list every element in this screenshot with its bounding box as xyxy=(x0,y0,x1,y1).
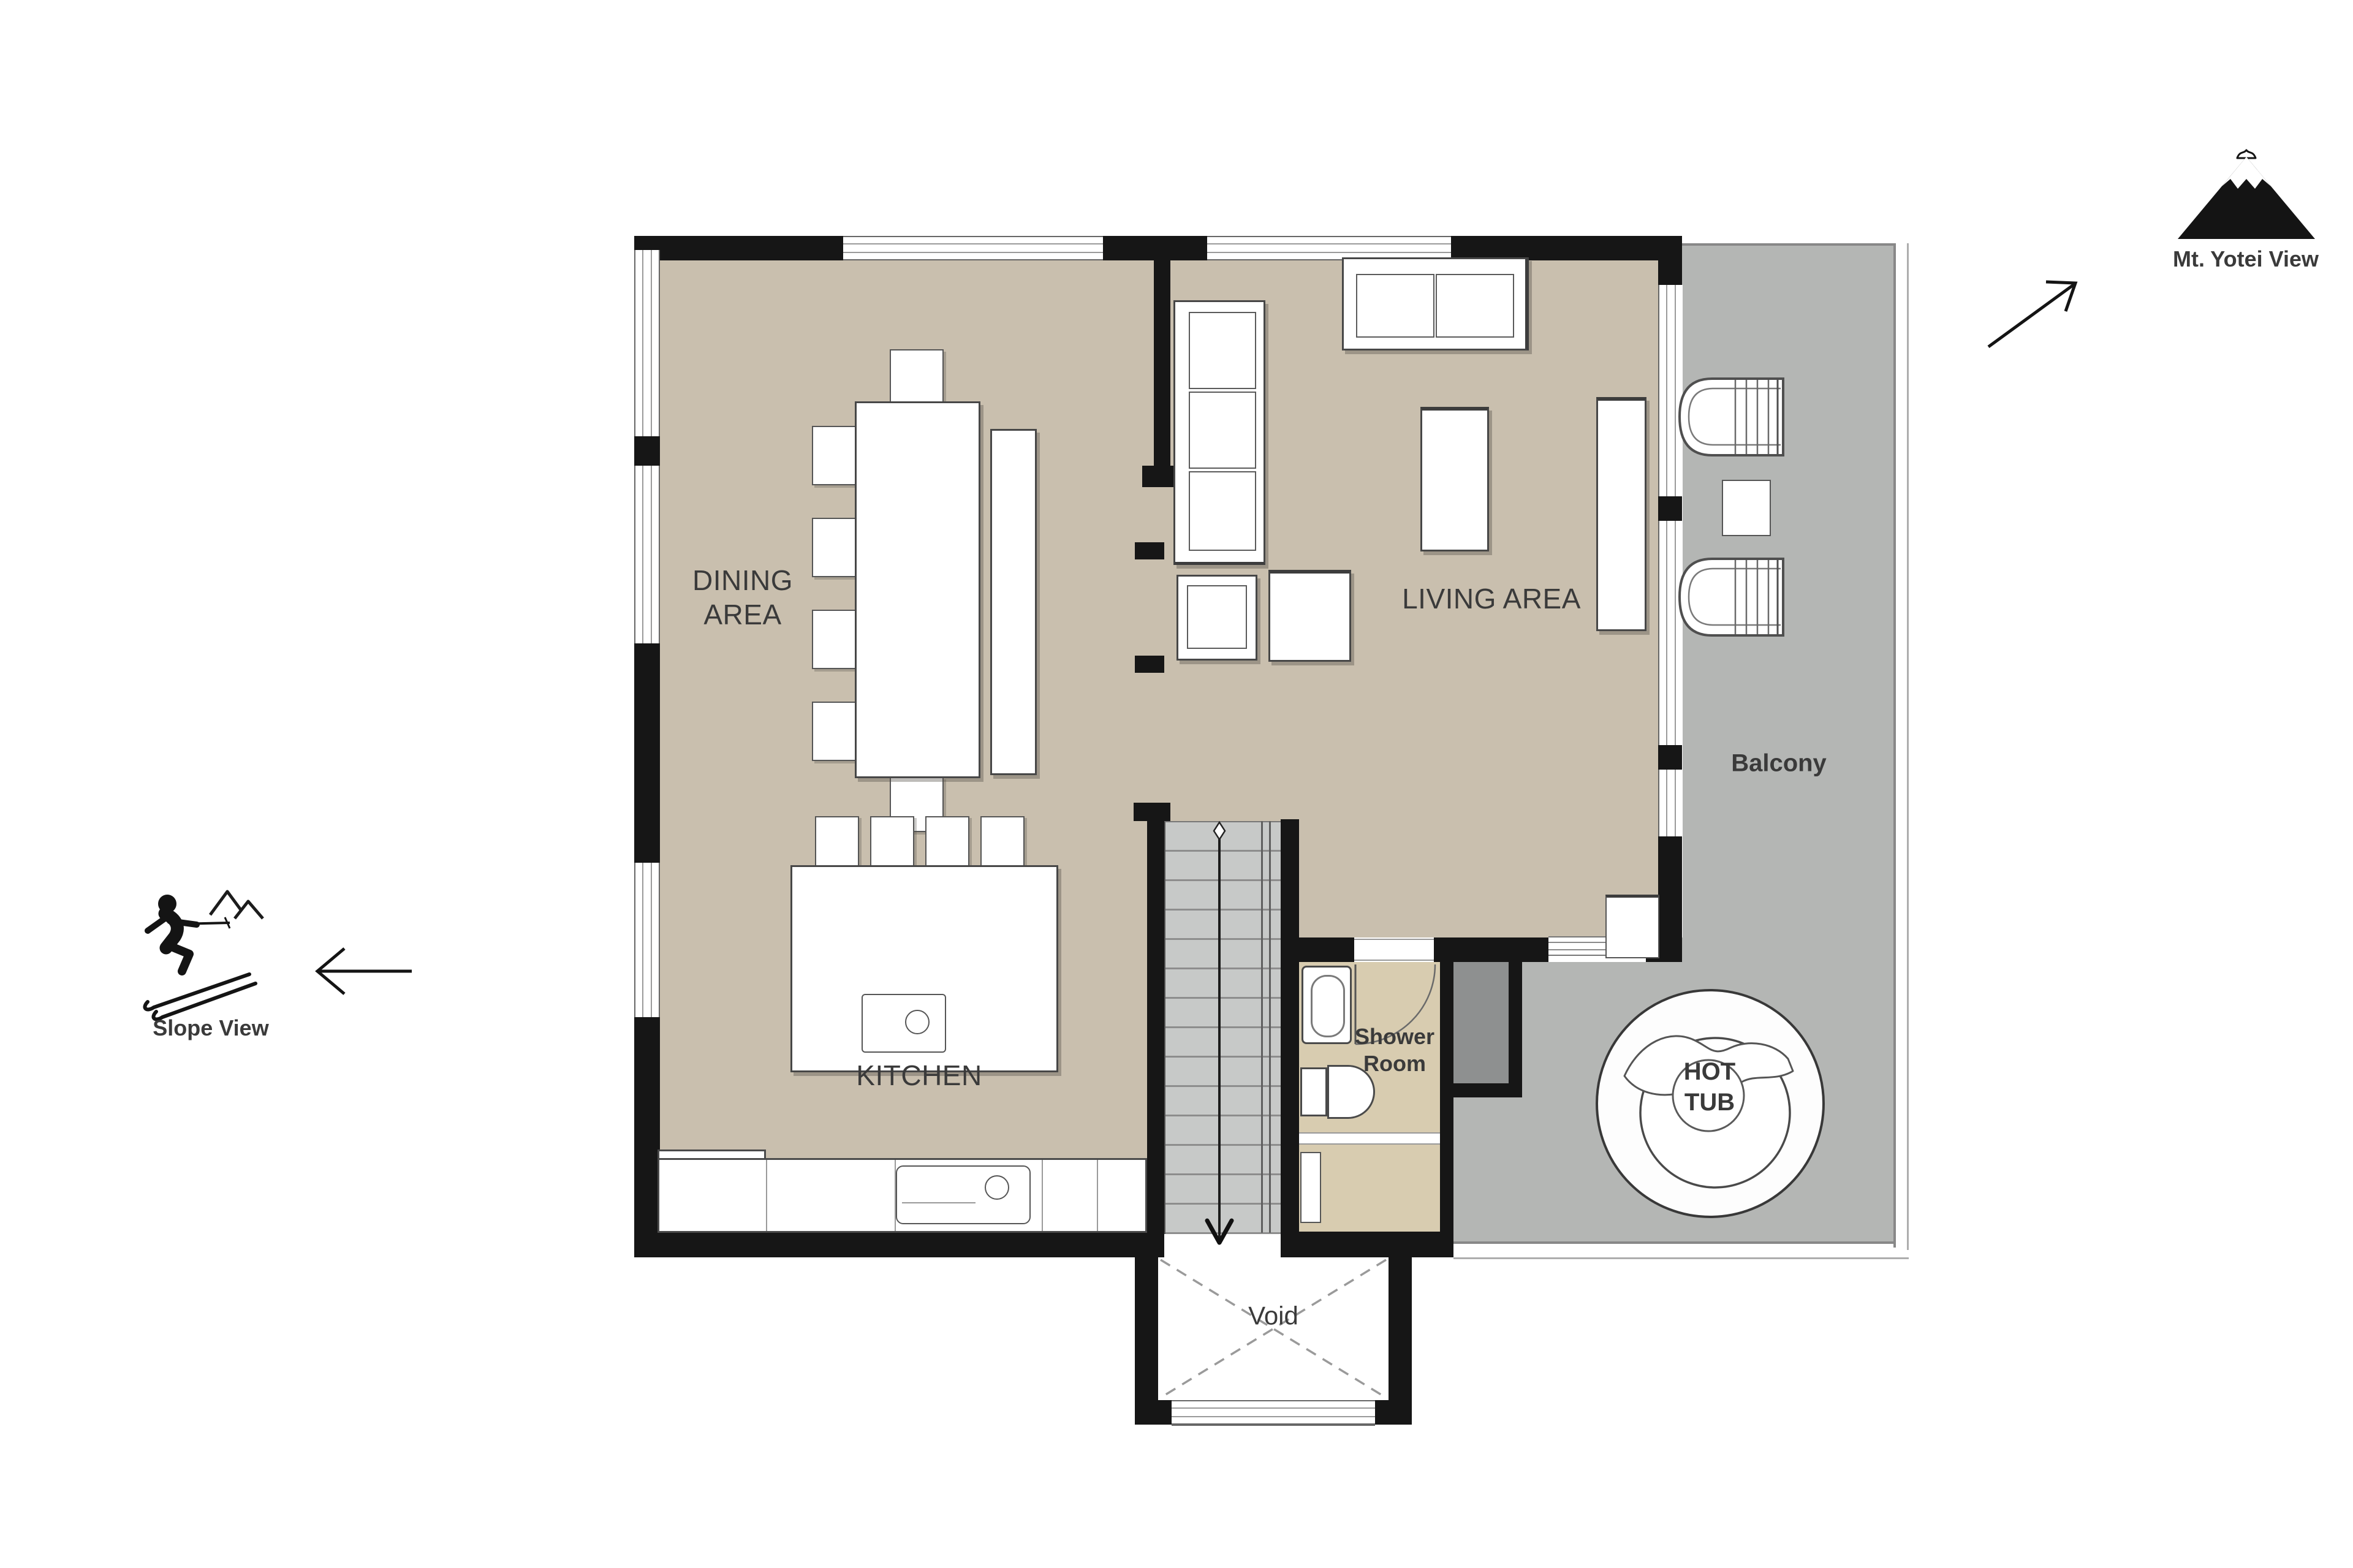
window-left-1 xyxy=(634,250,660,436)
wall-right-seg-bottom-over xyxy=(1658,836,1682,962)
wall-column-stub-lower xyxy=(1135,656,1164,673)
wall-bottom-kitchen xyxy=(634,1232,1147,1257)
kitchen-island-sink xyxy=(862,994,946,1053)
footstool xyxy=(1176,575,1257,661)
dining-chair-left-2 xyxy=(812,518,858,577)
kitchen-counter-faucet xyxy=(985,1175,1009,1200)
label-dining-line2: AREA xyxy=(692,597,793,632)
window-top-2 xyxy=(1207,236,1451,260)
label-dining-line1: DINING xyxy=(692,563,793,597)
label-hot-tub-line1: HOT xyxy=(1684,1056,1735,1087)
window-top-1 xyxy=(843,236,1103,260)
dining-chair-left-3 xyxy=(812,610,858,669)
door-opening-shower xyxy=(1354,939,1434,961)
balcony-edge-bottom-inner xyxy=(1453,1241,1895,1244)
wall-right-seg-top xyxy=(1658,260,1682,285)
bathtub xyxy=(1302,966,1352,1044)
wall-right-seg-mid2-over xyxy=(1658,745,1682,770)
balcony-edge-bottom-outer xyxy=(1453,1257,1909,1259)
label-yotei-view: Mt. Yotei View xyxy=(2173,246,2319,273)
window-void-bottom xyxy=(1172,1400,1375,1426)
sofa-left xyxy=(1173,300,1265,565)
kitchen-stool-2 xyxy=(870,816,914,866)
kitchen-stool-3 xyxy=(925,816,969,866)
kitchen-stool-1 xyxy=(815,816,859,866)
wall-void-bottom-stub-right xyxy=(1375,1400,1412,1425)
sofa-top xyxy=(1342,257,1529,350)
label-hot-tub: HOT TUB xyxy=(1684,1056,1735,1118)
balcony-rail-right-inner xyxy=(1893,243,1896,1248)
coffee-table xyxy=(1420,407,1489,551)
label-shower-room: Shower Room xyxy=(1355,1023,1434,1077)
stairs-down-arrow xyxy=(1200,819,1239,1257)
dining-chair-left-4 xyxy=(812,702,858,761)
slope-view-arrow xyxy=(306,944,417,999)
window-left-3 xyxy=(634,863,660,1017)
counter-divider-1 xyxy=(766,1160,767,1231)
closet-interior xyxy=(1453,945,1509,1083)
wall-closet-bottom xyxy=(1440,1083,1522,1097)
label-shower-line2: Room xyxy=(1355,1050,1434,1077)
balcony-rail-right-outer xyxy=(1907,243,1909,1250)
counter-divider-3 xyxy=(1042,1160,1043,1231)
skier-icon xyxy=(138,879,279,1014)
label-dining-area: DINING AREA xyxy=(692,563,793,632)
label-kitchen: KITCHEN xyxy=(856,1058,982,1093)
dining-chair-left-1 xyxy=(812,426,858,485)
dining-table xyxy=(855,401,980,778)
label-hot-tub-line2: TUB xyxy=(1684,1087,1735,1118)
kitchen-stool-4 xyxy=(980,816,1025,866)
dining-chair-head xyxy=(890,349,944,403)
wall-void-bottom-stub-left xyxy=(1135,1400,1172,1425)
dining-bench xyxy=(990,429,1037,775)
window-left-2 xyxy=(634,466,660,643)
lounge-chair-1 xyxy=(1677,376,1786,458)
staircase-handrail-line-1 xyxy=(1261,821,1263,1233)
label-void: Void xyxy=(1248,1300,1298,1331)
label-balcony: Balcony xyxy=(1731,749,1827,779)
wall-stairs-left xyxy=(1147,819,1164,1257)
floor-plan-canvas: DINING AREA LIVING AREA KITCHEN Balcony … xyxy=(0,0,2353,1568)
counter-divider-4 xyxy=(1097,1160,1098,1231)
kitchen-island-faucet xyxy=(905,1010,930,1034)
armchair xyxy=(1268,570,1351,662)
wall-bottom-shower xyxy=(1299,1232,1453,1257)
staircase-handrail-line-2 xyxy=(1269,821,1271,1233)
wall-right-seg-mid1-over xyxy=(1658,496,1682,521)
mt-yotei-icon xyxy=(2174,148,2319,243)
toilet-tank xyxy=(1300,1067,1327,1116)
label-shower-line1: Shower xyxy=(1355,1023,1434,1050)
wall-partition-dining-living xyxy=(1154,260,1170,466)
yotei-view-arrow xyxy=(1982,270,2086,352)
lounge-chair-2 xyxy=(1677,556,1786,638)
side-table-living xyxy=(1605,895,1659,958)
label-living-area: LIVING AREA xyxy=(1402,581,1581,616)
balcony-side-table xyxy=(1722,480,1771,536)
shower-sliding-partition xyxy=(1299,1132,1440,1145)
wall-top xyxy=(634,236,1682,260)
tv-console xyxy=(1596,397,1646,631)
kitchen-counter-sink-step xyxy=(902,1202,976,1203)
wall-stairs-top-stub xyxy=(1134,803,1170,821)
kitchen-counter-sink xyxy=(896,1165,1031,1224)
balcony-edge-top xyxy=(1682,243,1895,246)
shower-vanity xyxy=(1300,1152,1321,1223)
label-slope-view: Slope View xyxy=(153,1015,268,1042)
wall-closet-right xyxy=(1509,945,1522,1097)
wall-stairs-right xyxy=(1281,819,1299,1257)
wall-column-stub-upper xyxy=(1135,542,1164,559)
